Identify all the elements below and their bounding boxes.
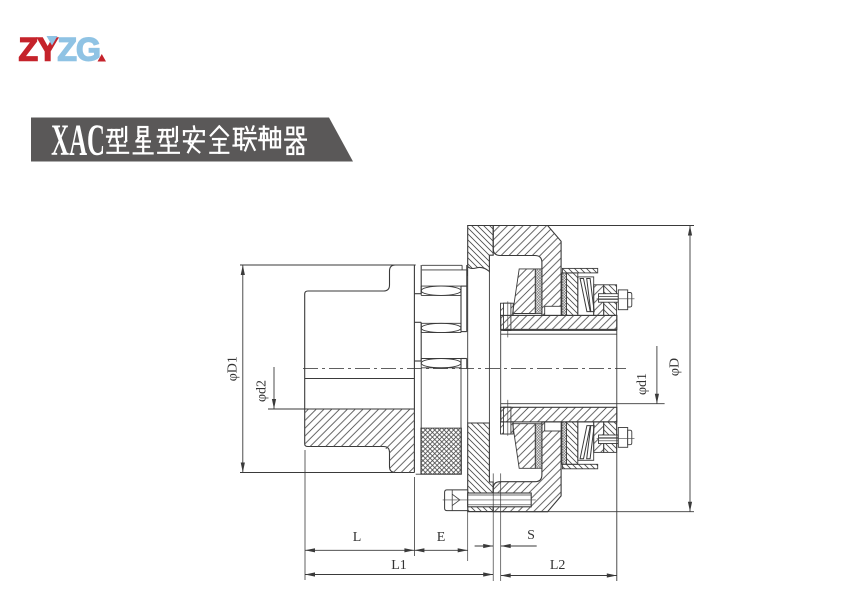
svg-text:L1: L1 <box>391 558 407 573</box>
svg-text:L: L <box>353 530 362 545</box>
svg-text:S: S <box>527 528 535 543</box>
svg-text:E: E <box>437 530 446 545</box>
svg-text:φd2: φd2 <box>255 380 270 402</box>
svg-text:φD1: φD1 <box>226 356 241 381</box>
svg-text:XAC: XAC <box>51 115 105 164</box>
svg-text:φD: φD <box>668 358 683 376</box>
svg-text:φd1: φd1 <box>635 373 650 395</box>
svg-text:ZYZG: ZYZG <box>19 32 100 68</box>
svg-text:L2: L2 <box>550 558 566 573</box>
